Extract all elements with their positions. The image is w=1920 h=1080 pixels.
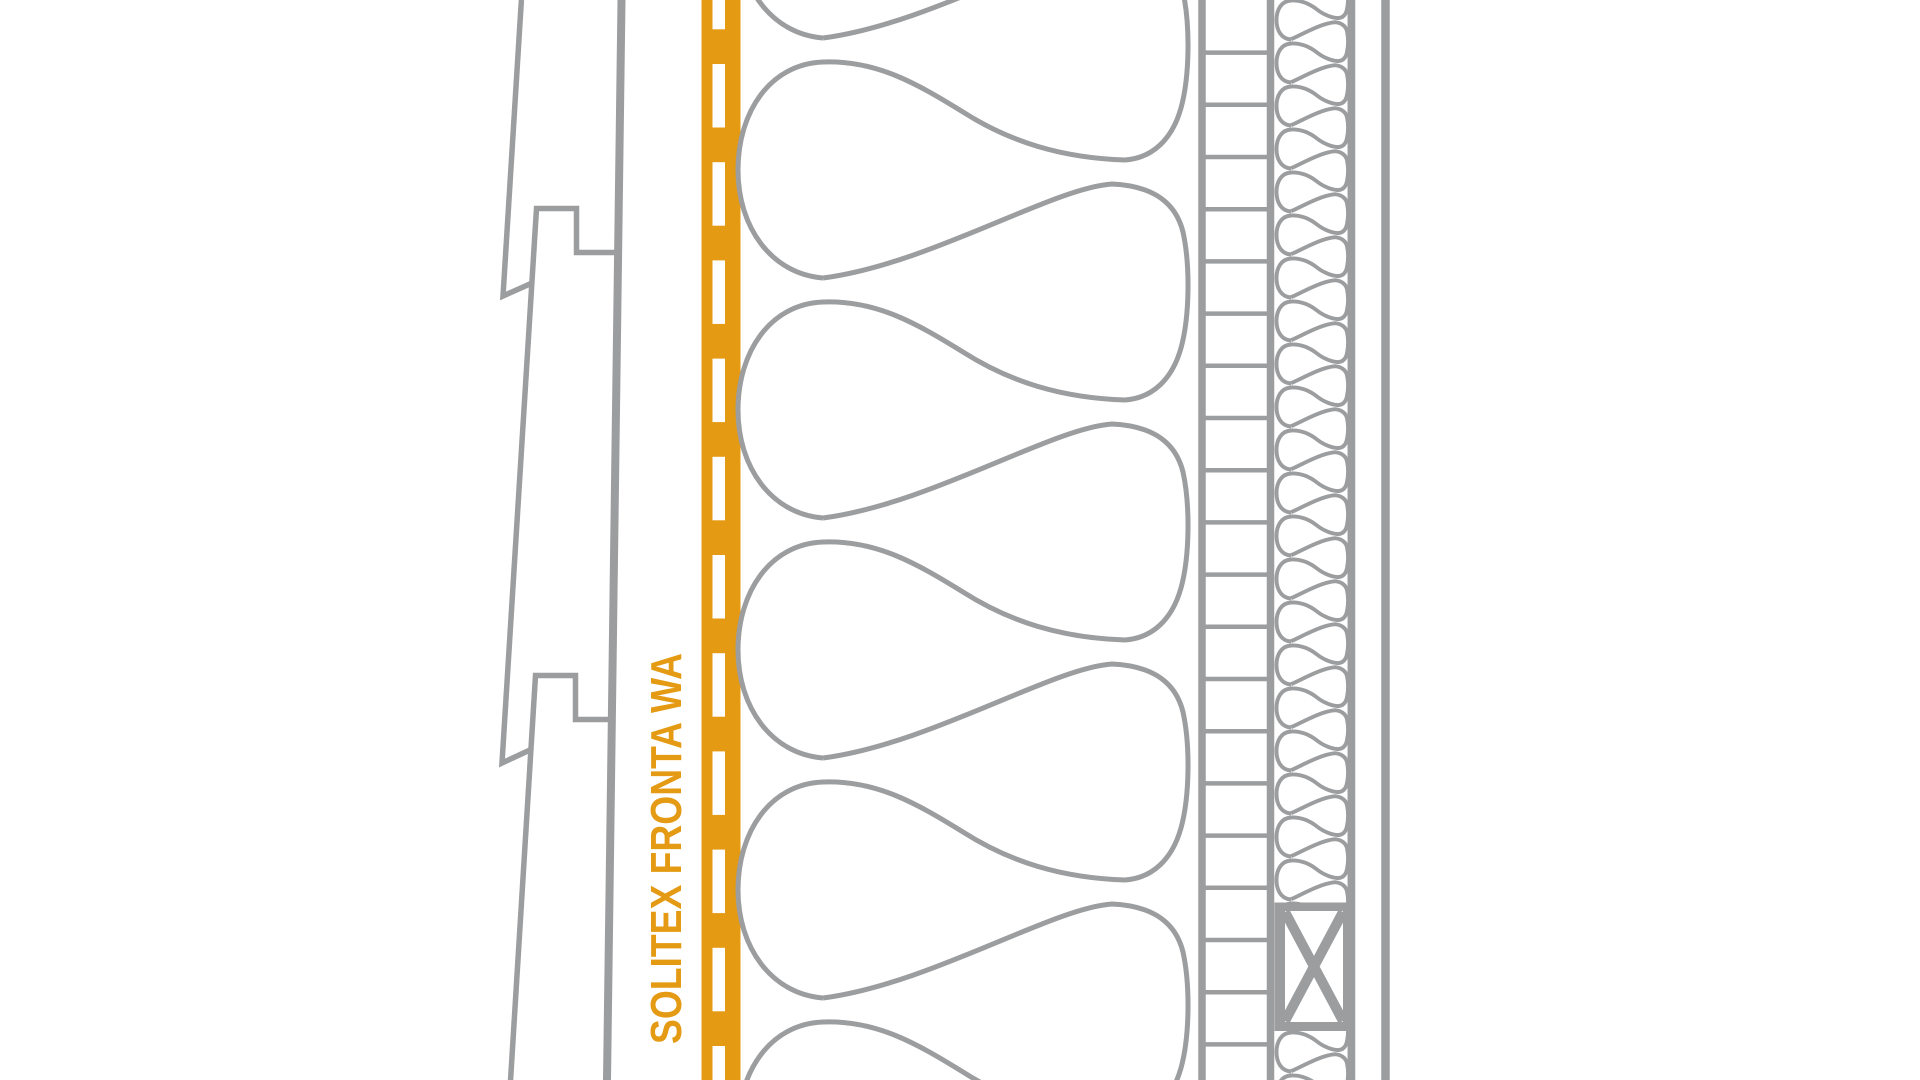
svg-text:SOLITEX FRONTA WA: SOLITEX FRONTA WA [643,653,691,1044]
